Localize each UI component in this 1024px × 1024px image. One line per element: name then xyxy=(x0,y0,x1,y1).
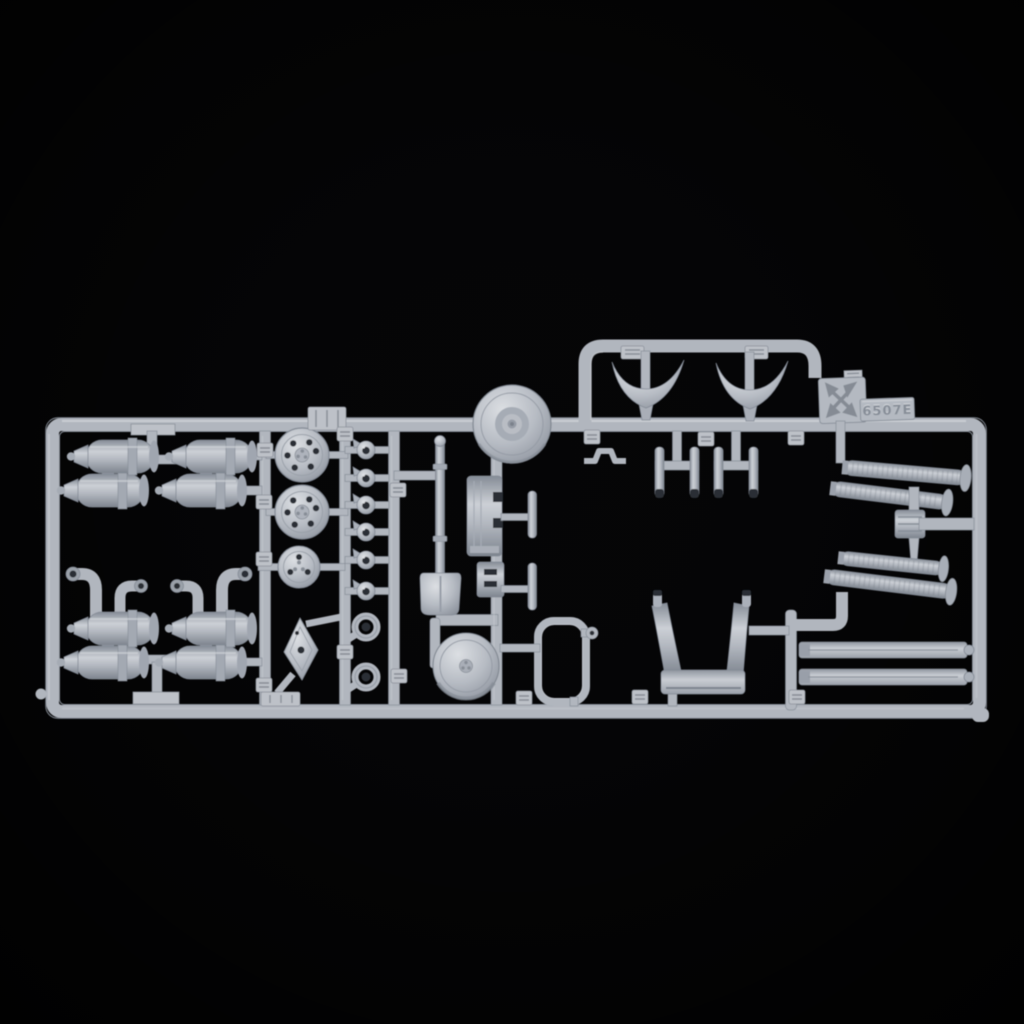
part-side-rail-2 xyxy=(799,669,974,685)
product-photo: 6507E 6507E xyxy=(0,0,1024,1024)
part-drum-wheel xyxy=(433,633,499,699)
plate-on-bottom-rail xyxy=(261,692,300,706)
part-box-lid-plate xyxy=(467,476,503,556)
sprue-number-text: 6507E xyxy=(862,403,913,420)
part-latch-block xyxy=(477,562,504,597)
right-rail-foot xyxy=(972,708,989,722)
vignette xyxy=(0,0,1024,1024)
part-number-tab xyxy=(621,346,644,359)
left-rail-nub xyxy=(36,689,47,700)
part-side-rail-1 xyxy=(799,642,974,658)
runner-horizontal-mid xyxy=(436,615,498,626)
plate-on-top-rail xyxy=(308,407,346,430)
part-dish-wheel xyxy=(473,385,551,463)
